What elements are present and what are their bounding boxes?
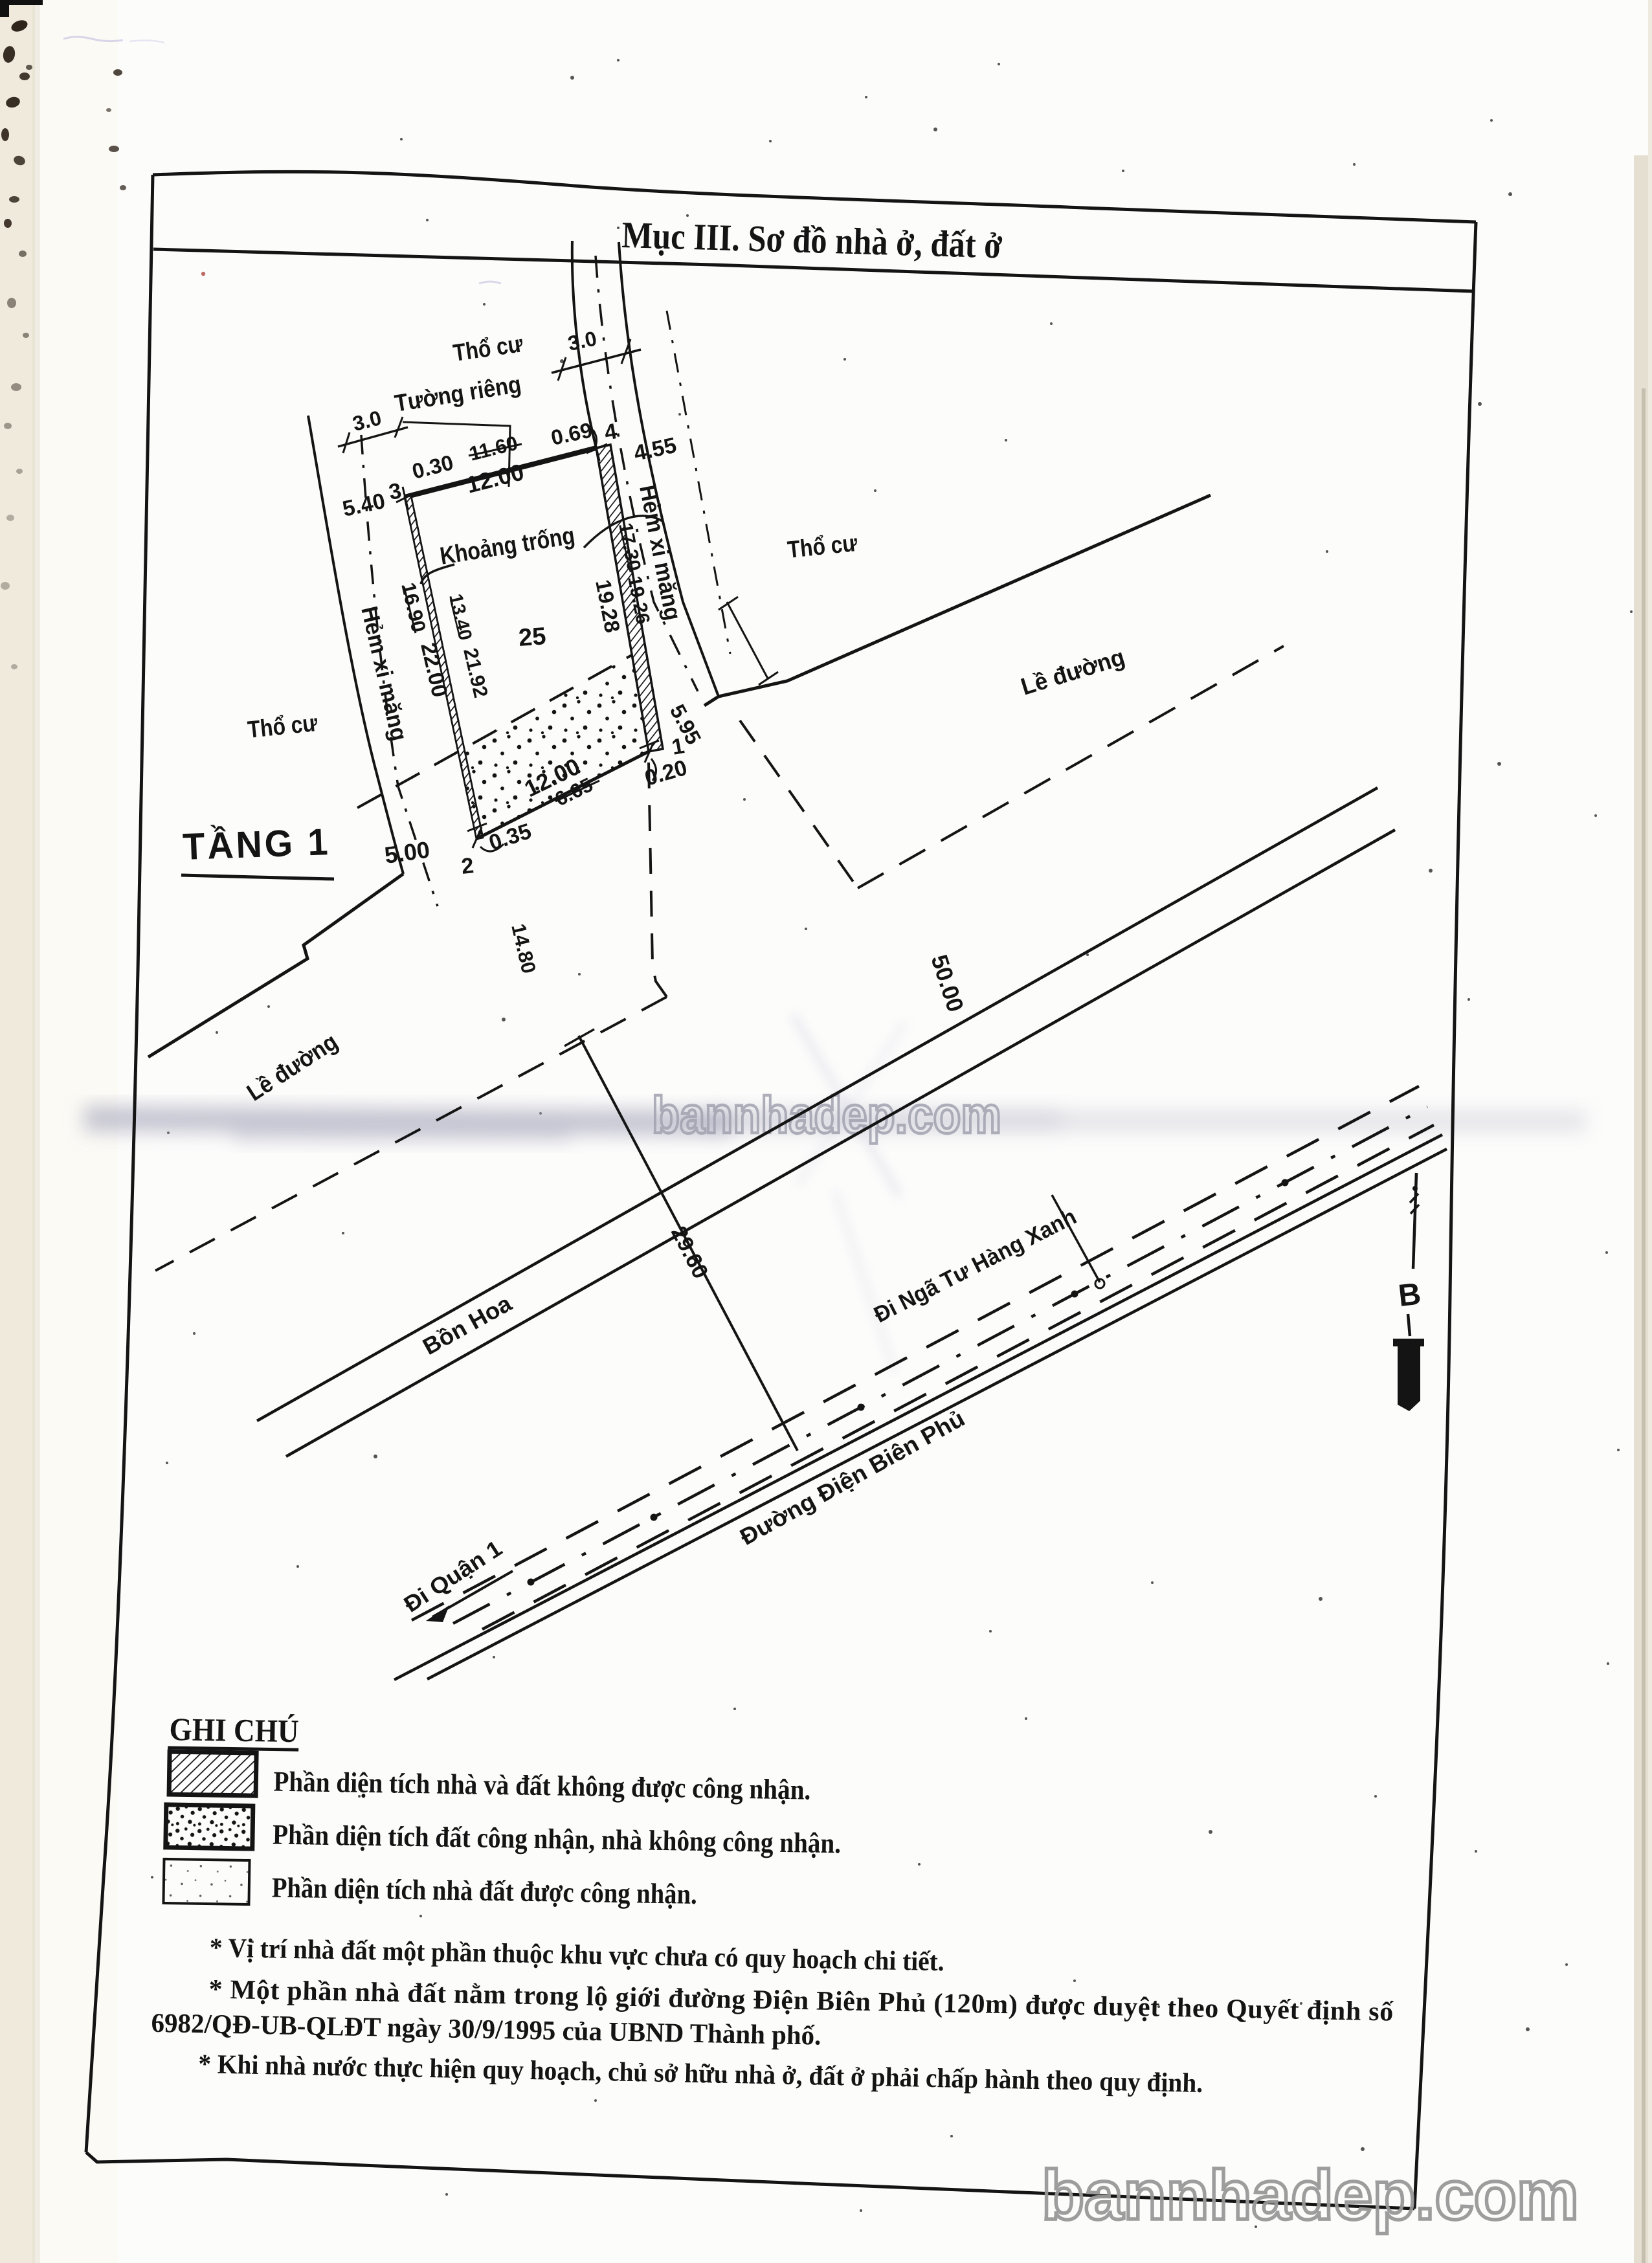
svg-text:B: B [1397, 1277, 1423, 1313]
svg-text:TẦNG 1: TẦNG 1 [182, 821, 331, 868]
svg-text:25: 25 [518, 623, 547, 652]
svg-text:bannhadep.com: bannhadep.com [1042, 2156, 1579, 2234]
svg-text:2: 2 [460, 853, 475, 879]
svg-text:bannhadep.com: bannhadep.com [652, 1086, 1001, 1144]
svg-text:GHI CHÚ: GHI CHÚ [169, 1711, 299, 1749]
svg-text:Phần diện tích nhà đất được cô: Phần diện tích nhà đất được công nhận. [271, 1872, 697, 1910]
